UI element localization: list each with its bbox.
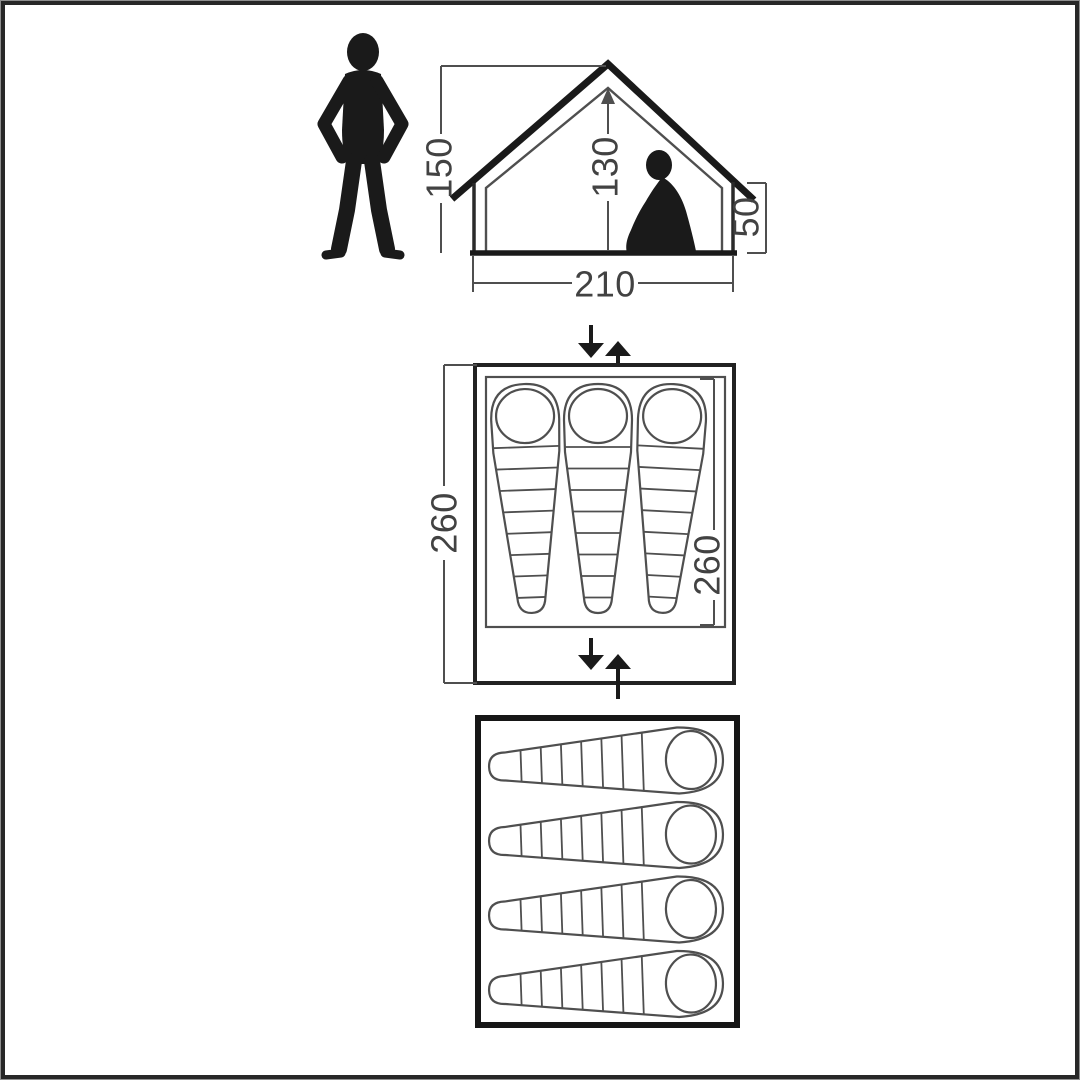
standing-person-head (347, 33, 379, 71)
standing-person-foot-left (326, 253, 341, 255)
floor-plan-4-person (478, 718, 737, 1025)
sleeping-bag-rib (520, 825, 521, 857)
sleeping-bag-rib (541, 896, 542, 932)
entrance-arrow-down-icon (578, 325, 604, 358)
standing-person-icon (324, 33, 402, 255)
sleeping-bag-rib (518, 597, 546, 598)
dim-150-label: 150 (419, 137, 460, 199)
floor-plan-3-person: 260 260 (424, 325, 735, 699)
standing-person-leg-right (372, 161, 387, 249)
diagram-svg: 150 130 50 210 (0, 0, 1080, 1080)
tent-side-view: 150 130 50 210 (419, 64, 767, 305)
sleeping-bag-rib (541, 822, 542, 858)
sleeping-bag-rib (541, 747, 542, 783)
standing-person-foot-right (385, 253, 400, 255)
sleeping-bag-rib (541, 971, 542, 1007)
sleeping-bag-rib (520, 974, 521, 1006)
sleeping-bags-row-vertical (490, 382, 708, 614)
dimension-ridge-height (441, 66, 606, 253)
sitting-person-body (626, 177, 696, 253)
sleeping-bag-rib (514, 575, 547, 576)
dim-260-left-label: 260 (424, 492, 465, 554)
dim-130-label: 130 (585, 136, 626, 198)
sitting-person-icon (626, 150, 696, 253)
dim-210-label: 210 (574, 264, 636, 305)
dim-260-right-label: 260 (687, 534, 728, 596)
sleeping-bag-rib (520, 750, 521, 782)
sleeping-bag-rib (520, 899, 521, 931)
standing-person-leg-left (339, 161, 354, 249)
arrow-up-head (605, 341, 631, 356)
sitting-person-head (646, 150, 672, 180)
dim-50-label: 50 (726, 196, 767, 237)
arrow-down-head (578, 343, 604, 358)
dim-130-arrow-up (601, 88, 615, 104)
